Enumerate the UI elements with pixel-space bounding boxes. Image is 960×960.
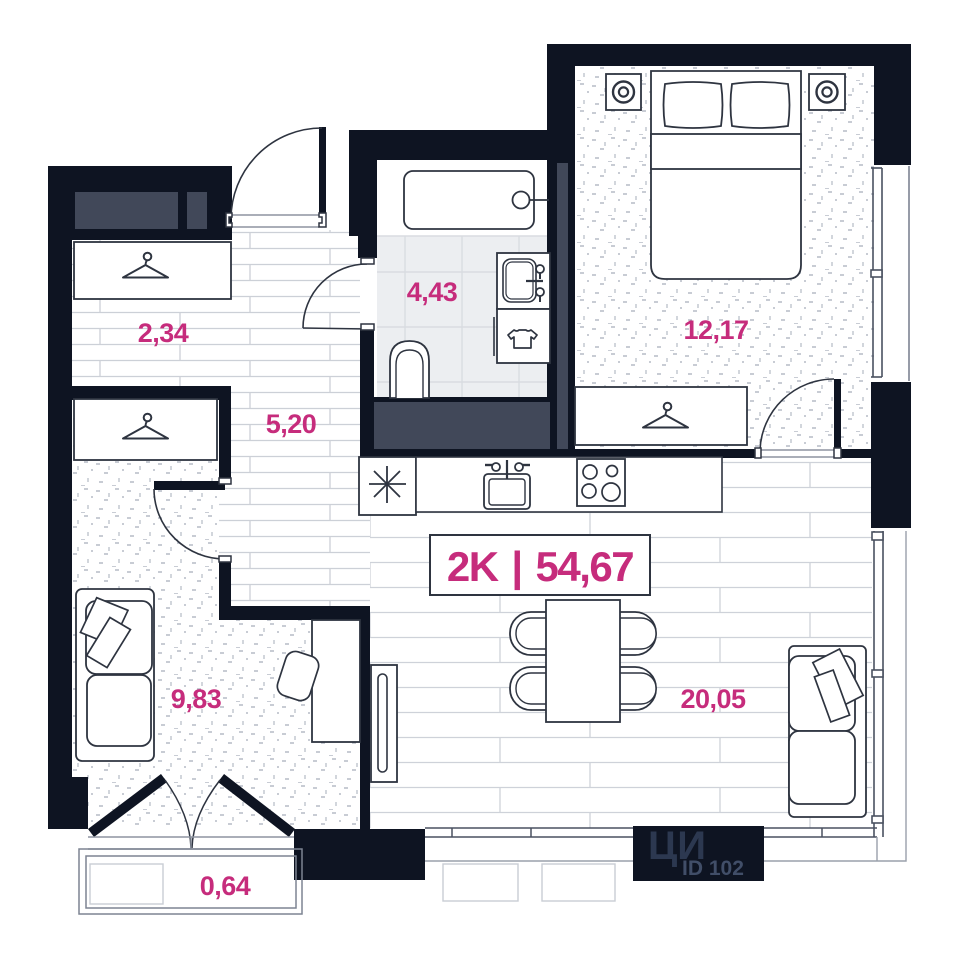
svg-text:2,34: 2,34	[138, 318, 189, 348]
svg-text:9,83: 9,83	[171, 684, 222, 714]
svg-text:20,05: 20,05	[680, 684, 746, 714]
svg-text:2K | 54,67: 2K | 54,67	[447, 543, 633, 591]
svg-text:4,43: 4,43	[407, 277, 458, 307]
svg-text:5,20: 5,20	[266, 409, 317, 439]
svg-text:ID 102: ID 102	[682, 857, 744, 880]
svg-text:12,17: 12,17	[683, 315, 748, 345]
svg-text:0,64: 0,64	[200, 871, 251, 901]
